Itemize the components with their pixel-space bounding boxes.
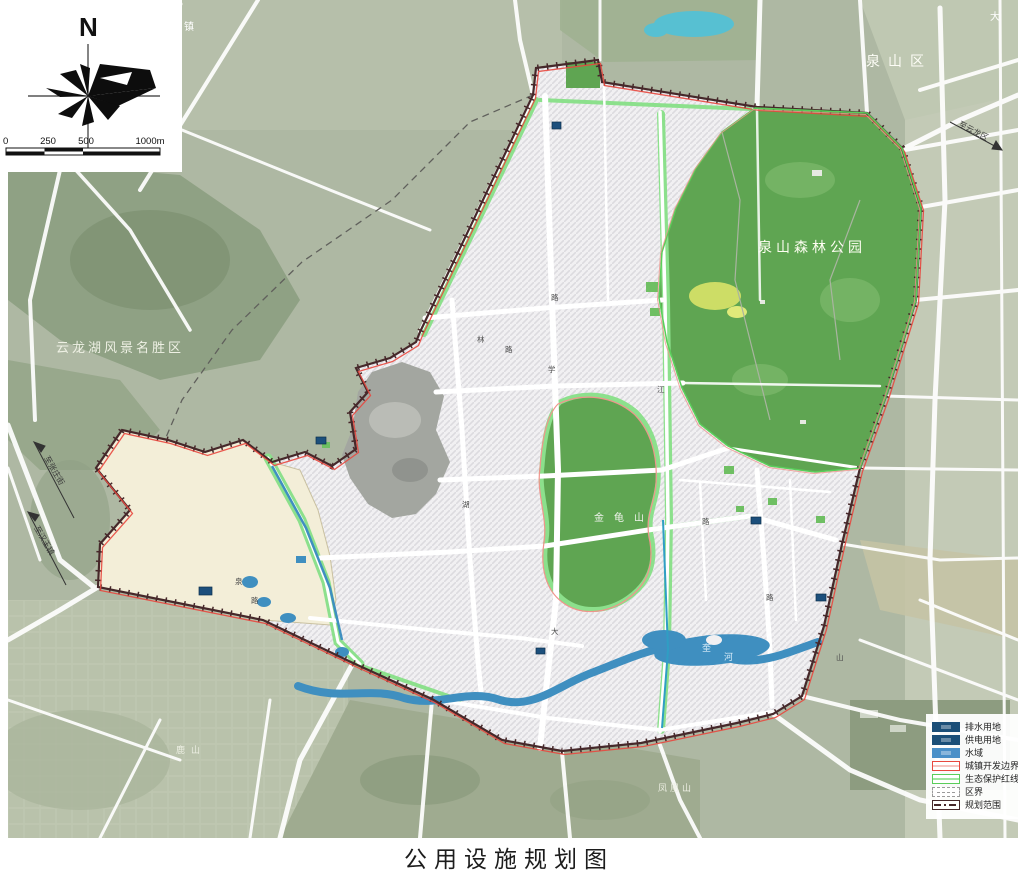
area-label: 云龙湖风景名胜区 (56, 340, 184, 355)
utility-facility-marker (816, 594, 826, 601)
road-label: 林 (477, 334, 485, 344)
utility-facility-marker (751, 517, 761, 524)
area-label: 凤凰山 (658, 783, 694, 793)
map-title: 公用设施规划图 (0, 840, 1018, 874)
area-label: 金龟山 (594, 511, 654, 524)
legend-swatch-line-icon (932, 761, 960, 771)
legend-swatch-fill-icon (932, 722, 960, 732)
road-label: 湖 (462, 500, 470, 509)
area-label: 泉山森林公园 (758, 239, 866, 255)
river-label: 河 (724, 651, 733, 662)
road-label: 学 (548, 364, 556, 374)
utility-facility-marker (552, 122, 561, 129)
legend-item: 生态保护红线 (932, 774, 1014, 784)
legend: 排水用地供电用地水域城镇开发边界生态保护红线区界规划范围 (926, 714, 1018, 819)
legend-swatch-fill-icon (932, 735, 960, 745)
map-canvas: 林路学路江大泉路湖路山路 泉山区云龙湖风景名胜区泉山森林公园金龟山鹿山凤凰山大镇… (0, 0, 1018, 838)
legend-item-label: 区界 (965, 788, 983, 797)
road-label: 路 (505, 344, 513, 354)
legend-item-label: 生态保护红线 (965, 775, 1018, 784)
legend-item-label: 规划范围 (965, 801, 1001, 810)
utility-facility-marker (199, 587, 212, 595)
legend-item-label: 供电用地 (965, 736, 1001, 745)
area-label: 镇 (184, 20, 194, 33)
legend-item-label: 水域 (965, 749, 983, 758)
legend-item: 城镇开发边界 (932, 761, 1014, 771)
planning-map-page: 林路学路江大泉路湖路山路 泉山区云龙湖风景名胜区泉山森林公园金龟山鹿山凤凰山大镇… (0, 0, 1018, 878)
legend-item-label: 城镇开发边界 (965, 762, 1018, 771)
utility-facility-marker (536, 648, 545, 654)
legend-item: 排水用地 (932, 722, 1014, 732)
road-label: 路 (702, 516, 710, 526)
svg-text:0: 0 (3, 136, 8, 147)
road-label: 路 (551, 292, 559, 302)
road-label: 路 (251, 595, 259, 605)
compass-north-label: N (79, 12, 98, 42)
road-label: 山 (836, 652, 844, 662)
svg-text:1000m: 1000m (135, 136, 164, 147)
legend-item: 规划范围 (932, 800, 1014, 810)
road-label: 路 (766, 592, 774, 602)
legend-swatch-dashdot-icon (932, 800, 960, 810)
legend-swatch-fill-icon (932, 748, 960, 758)
utility-facility-marker (316, 437, 326, 444)
legend-item: 供电用地 (932, 735, 1014, 745)
legend-swatch-dashed-icon (932, 787, 960, 797)
legend-item-label: 排水用地 (965, 723, 1001, 732)
road-label: 江 (657, 385, 665, 394)
legend-item: 区界 (932, 787, 1014, 797)
area-label: 大 (990, 10, 1000, 23)
area-label: 鹿山 (176, 744, 206, 755)
road-label: 泉 (235, 576, 243, 586)
legend-swatch-line-icon (932, 774, 960, 784)
river-label: 奎 (702, 642, 711, 653)
area-label: 泉山区 (866, 53, 932, 69)
legend-item: 水域 (932, 748, 1014, 758)
svg-text:250: 250 (40, 136, 56, 147)
svg-text:500: 500 (78, 136, 94, 147)
road-label: 大 (551, 626, 559, 636)
